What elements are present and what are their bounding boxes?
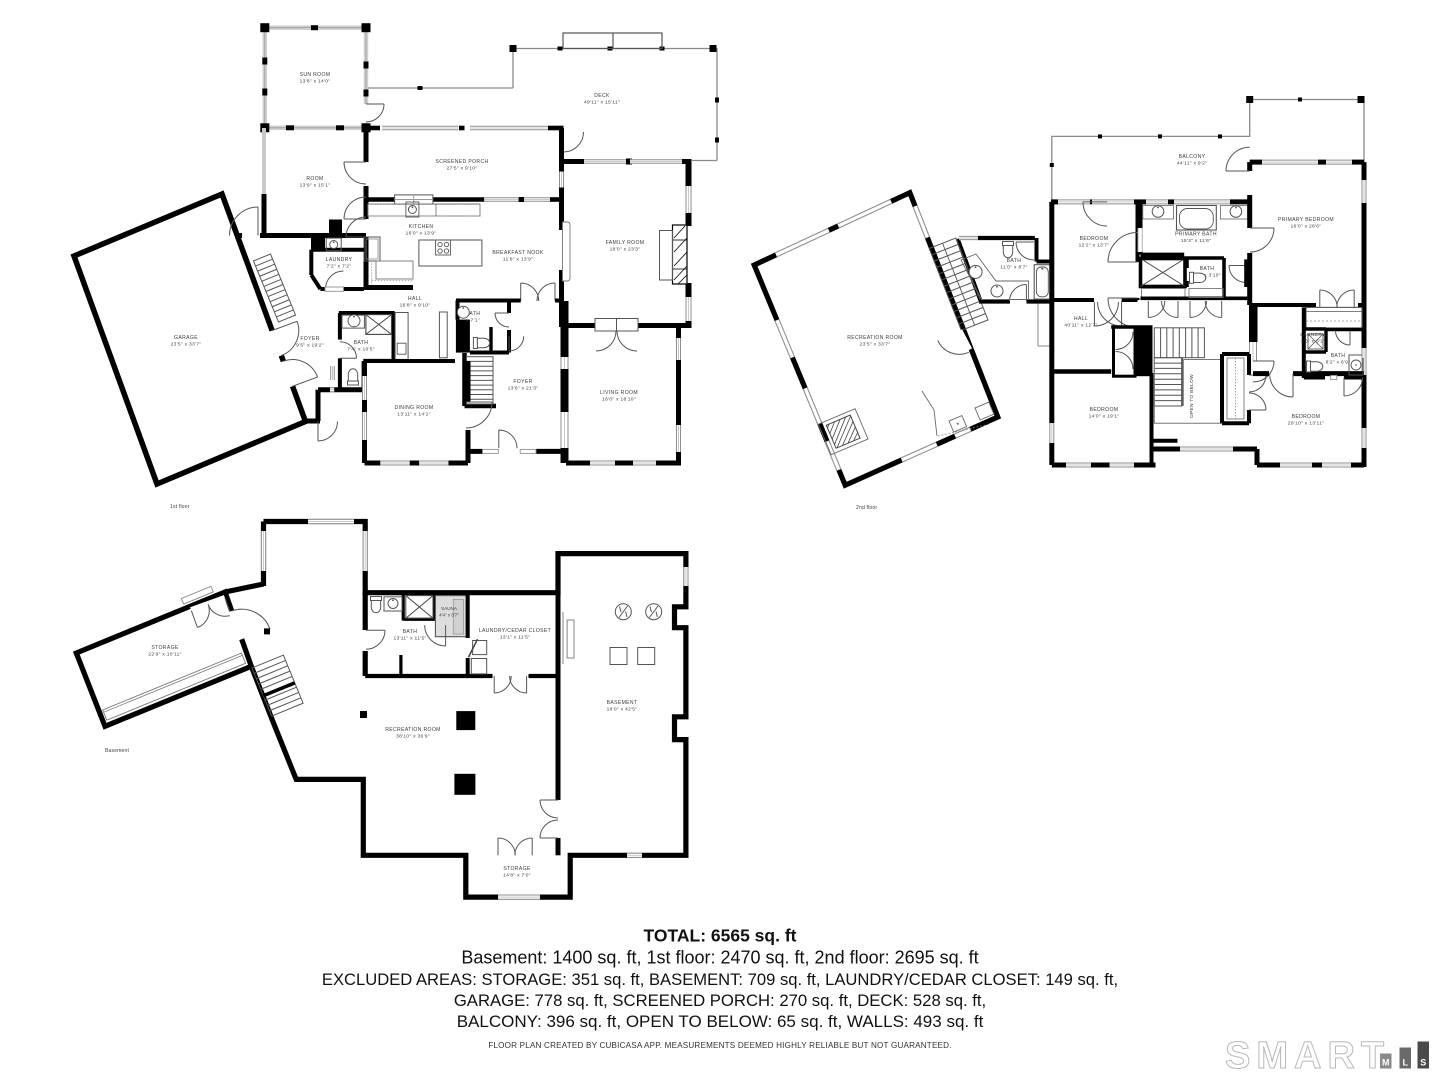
svg-text:14'8" x 7'0": 14'8" x 7'0" [503, 872, 531, 878]
svg-text:LAUNDRY/CEDAR CLOSET: LAUNDRY/CEDAR CLOSET [479, 628, 551, 634]
svg-text:13'9" x 15'1": 13'9" x 15'1" [300, 182, 331, 188]
svg-text:13'6" x 21'3": 13'6" x 21'3" [508, 385, 539, 391]
svg-text:18'0" x 42'5": 18'0" x 42'5" [607, 706, 638, 712]
svg-text:29'10" x 13'11": 29'10" x 13'11" [1288, 420, 1324, 426]
svg-text:16'0" x 18'10": 16'0" x 18'10" [602, 396, 636, 402]
svg-text:9'5" x 19'2": 9'5" x 19'2" [296, 342, 324, 348]
svg-text:PRIMARY BATH: PRIMARY BATH [1175, 232, 1217, 238]
svg-text:FOYER: FOYER [513, 379, 532, 385]
svg-text:RECREATION ROOM: RECREATION ROOM [385, 727, 441, 733]
svg-text:S: S [1420, 1058, 1426, 1068]
svg-text:BEDROOM: BEDROOM [1292, 414, 1321, 420]
svg-text:BEDROOM: BEDROOM [1080, 236, 1109, 242]
svg-text:44'11" x 9'2": 44'11" x 9'2" [1177, 160, 1207, 166]
svg-text:HALL: HALL [1074, 316, 1088, 322]
svg-text:STORAGE: STORAGE [151, 645, 179, 651]
svg-text:BEDROOM: BEDROOM [1090, 407, 1119, 413]
svg-text:38'10" x 36'9": 38'10" x 36'9" [396, 733, 430, 739]
svg-text:16'0" x 28'6": 16'0" x 28'6" [1291, 223, 1322, 229]
svg-text:BALCONY: BALCONY [1179, 154, 1206, 160]
svg-text:15'3" x 11'6": 15'3" x 11'6" [1181, 238, 1211, 244]
svg-text:7'4" x 10'5": 7'4" x 10'5" [347, 346, 375, 352]
svg-text:BREAKFAST NOOK: BREAKFAST NOOK [492, 250, 543, 256]
svg-text:ROOM: ROOM [306, 176, 323, 182]
svg-text:L: L [1402, 1058, 1408, 1068]
svg-text:49'11" x 15'11": 49'11" x 15'11" [584, 99, 620, 105]
svg-text:4'4" x 5'7": 4'4" x 5'7" [439, 612, 459, 617]
svg-text:FAMILY ROOM: FAMILY ROOM [606, 240, 645, 246]
svg-text:x 7'1": x 7'1" [466, 317, 480, 323]
svg-text:RECREATION ROOM: RECREATION ROOM [847, 335, 903, 341]
svg-text:11'0" x 8'7": 11'0" x 8'7" [1000, 264, 1027, 270]
svg-text:BATH: BATH [1007, 258, 1022, 264]
svg-text:13'1" x 11'5": 13'1" x 11'5" [500, 634, 530, 640]
svg-text:22'9" x 10'11": 22'9" x 10'11" [148, 651, 181, 657]
svg-text:BATH: BATH [1331, 353, 1346, 359]
svg-text:SAUNA: SAUNA [441, 606, 458, 611]
svg-text:LAUNDRY: LAUNDRY [326, 257, 353, 263]
svg-text:STORAGE: STORAGE [503, 866, 531, 872]
svg-text:12'2" x 13'7": 12'2" x 13'7" [1079, 242, 1110, 248]
svg-text:7'2" x 7'2": 7'2" x 7'2" [327, 263, 352, 269]
svg-text:18'0" x 23'3": 18'0" x 23'3" [610, 246, 641, 252]
svg-text:BATH: BATH [403, 629, 418, 635]
svg-text:FOYER: FOYER [300, 336, 319, 342]
svg-text:SMART: SMART [1225, 1035, 1390, 1077]
svg-text:KITCHEN: KITCHEN [409, 224, 434, 230]
svg-text:HALL: HALL [408, 296, 422, 302]
svg-text:FLOOR PLAN CREATED BY CUBICASA: FLOOR PLAN CREATED BY CUBICASA APP. MEAS… [488, 1041, 951, 1050]
svg-text:LIVING ROOM: LIVING ROOM [600, 390, 638, 396]
svg-text:23'5" x 33'7": 23'5" x 33'7" [860, 341, 891, 347]
svg-text:23'5" x 33'7": 23'5" x 33'7" [171, 341, 202, 347]
svg-text:DECK: DECK [594, 93, 610, 99]
svg-text:M: M [1382, 1058, 1390, 1068]
svg-text:11'9" x 13'9": 11'9" x 13'9" [503, 256, 533, 262]
svg-text:Basement: Basement [105, 748, 130, 754]
svg-text:BATH: BATH [354, 340, 369, 346]
svg-text:13'8" x 14'0": 13'8" x 14'0" [300, 78, 331, 84]
svg-text:DINING ROOM: DINING ROOM [395, 405, 434, 411]
svg-text:14'0" x 19'1": 14'0" x 19'1" [1089, 413, 1120, 419]
svg-text:SCREENED PORCH: SCREENED PORCH [435, 159, 488, 165]
svg-text:EXCLUDED AREAS: STORAGE: 351 s: EXCLUDED AREAS: STORAGE: 351 sq. ft, BAS… [322, 970, 1118, 989]
svg-text:GARAGE: GARAGE [174, 335, 198, 341]
svg-text:BALCONY: 396 sq. ft, OPEN TO B: BALCONY: 396 sq. ft, OPEN TO BELOW: 65 s… [457, 1012, 984, 1031]
svg-text:16'0" x 13'9": 16'0" x 13'9" [406, 230, 437, 236]
svg-text:SUN ROOM: SUN ROOM [300, 72, 331, 78]
svg-text:2nd floor: 2nd floor [856, 505, 877, 511]
svg-text:13'11" x 11'5": 13'11" x 11'5" [393, 635, 426, 641]
svg-text:13'11" x 14'1": 13'11" x 14'1" [397, 411, 430, 417]
svg-text:PRIMARY BEDROOM: PRIMARY BEDROOM [1278, 217, 1334, 223]
svg-text:27'5" x 9'10": 27'5" x 9'10" [447, 165, 478, 171]
svg-text:OPEN TO BELOW: OPEN TO BELOW [1189, 374, 1195, 418]
svg-text:8'2" x 6'9": 8'2" x 6'9" [1326, 359, 1351, 365]
svg-text:1st floor: 1st floor [170, 504, 190, 510]
svg-text:16'8" x 9'10": 16'8" x 9'10" [400, 302, 431, 308]
svg-text:Basement: 1400 sq. ft, 1st flo: Basement: 1400 sq. ft, 1st floor: 2470 s… [461, 948, 978, 968]
svg-text:BASEMENT: BASEMENT [607, 700, 638, 706]
svg-text:BATH: BATH [1200, 266, 1215, 272]
svg-text:TOTAL: 6565 sq. ft: TOTAL: 6565 sq. ft [644, 926, 797, 946]
svg-text:GARAGE: 778 sq. ft, SCREENED P: GARAGE: 778 sq. ft, SCREENED PORCH: 270 … [454, 991, 986, 1010]
svg-text:40'11" x 12'7": 40'11" x 12'7" [1064, 322, 1097, 328]
